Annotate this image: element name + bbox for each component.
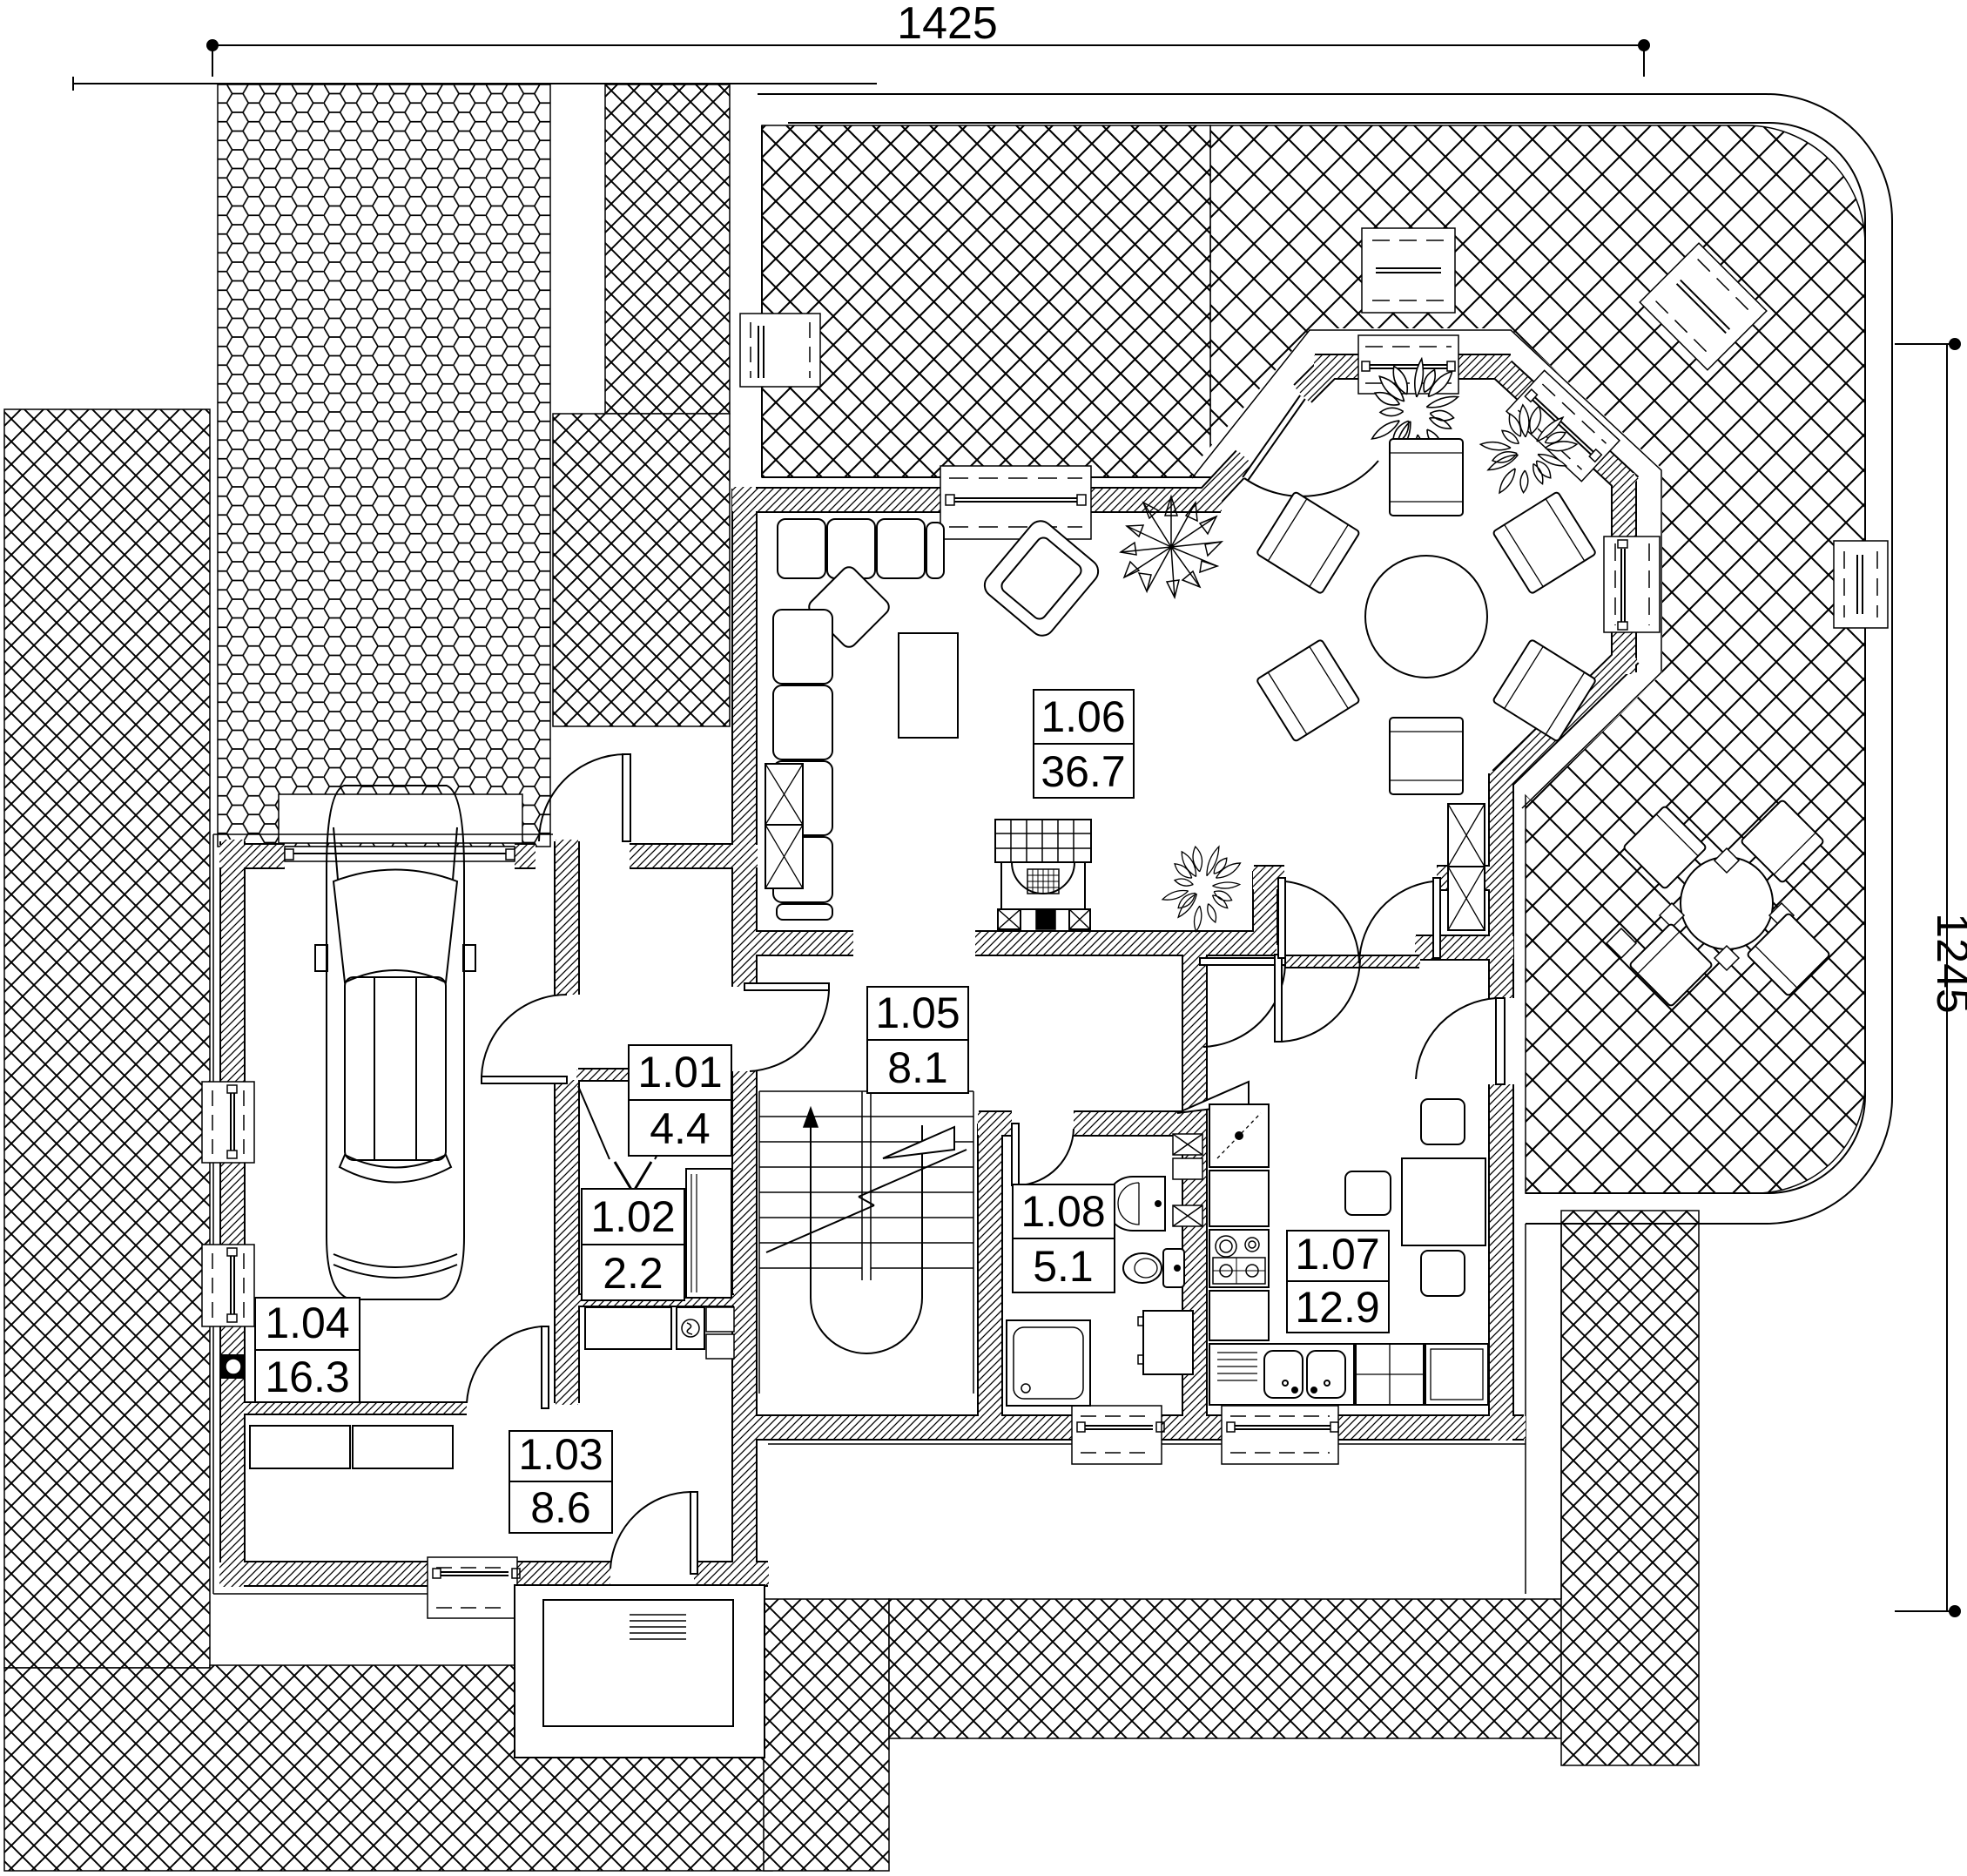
svg-text:1.03: 1.03 — [518, 1430, 603, 1479]
svg-text:1.07: 1.07 — [1295, 1230, 1379, 1279]
svg-text:1425: 1425 — [897, 0, 998, 49]
svg-text:1.05: 1.05 — [875, 989, 960, 1037]
svg-text:5.1: 5.1 — [1033, 1242, 1094, 1291]
svg-text:1245: 1245 — [1927, 913, 1967, 1014]
svg-text:36.7: 36.7 — [1041, 747, 1125, 796]
svg-text:8.1: 8.1 — [887, 1043, 948, 1092]
svg-text:12.9: 12.9 — [1295, 1283, 1379, 1332]
svg-text:8.6: 8.6 — [530, 1483, 591, 1532]
svg-text:1.02: 1.02 — [590, 1192, 675, 1241]
svg-text:16.3: 16.3 — [265, 1353, 349, 1401]
svg-text:4.4: 4.4 — [650, 1104, 711, 1153]
svg-text:2.2: 2.2 — [603, 1249, 664, 1298]
svg-text:1.08: 1.08 — [1021, 1187, 1105, 1236]
svg-text:1.06: 1.06 — [1041, 692, 1125, 741]
svg-text:1.01: 1.01 — [637, 1048, 722, 1097]
svg-text:1.04: 1.04 — [265, 1299, 349, 1347]
